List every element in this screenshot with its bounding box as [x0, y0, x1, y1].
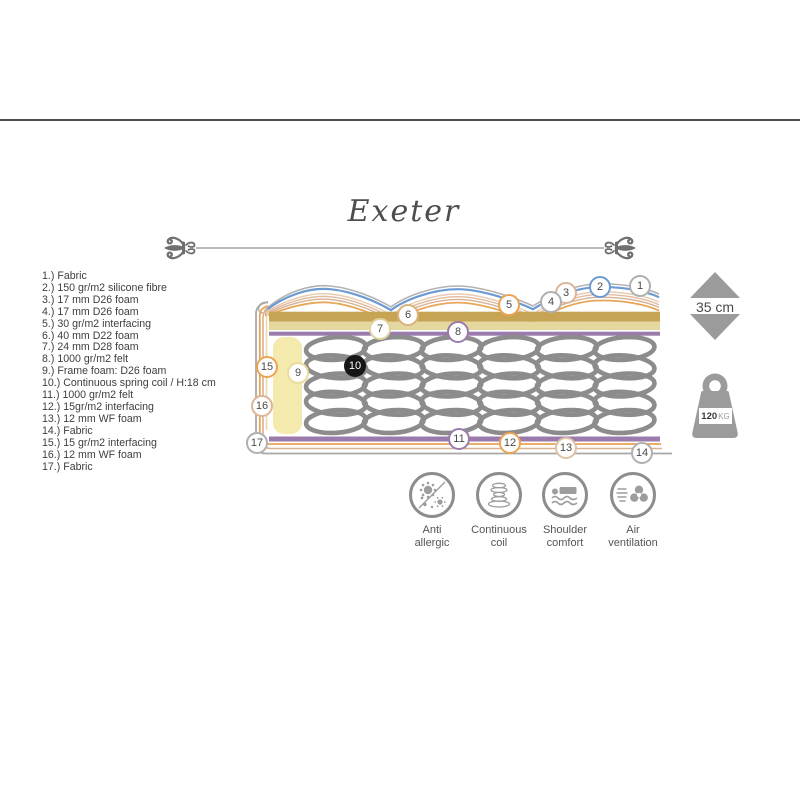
- item-number: 2.): [42, 282, 54, 294]
- layer-callout-5: 5: [498, 294, 520, 316]
- spec-list-item: 17.)Fabric: [42, 462, 216, 474]
- item-text: 12 mm WF foam: [63, 413, 141, 425]
- item-number: 1.): [42, 270, 54, 282]
- feature-label-line: ventilation: [588, 537, 678, 550]
- item-number: 3.): [42, 294, 54, 306]
- item-text: 1000 gr/m2 felt: [57, 353, 128, 365]
- item-number: 14.): [42, 425, 60, 437]
- anti-allergic-icon: [409, 472, 455, 518]
- layer-spec-list: 1.)Fabric 2.)150 gr/m2 silicone fibre 3.…: [42, 271, 216, 473]
- item-text: 150 gr/m2 silicone fibre: [57, 282, 167, 294]
- layer-callout-14: 14: [631, 442, 653, 464]
- spring-coils: [305, 335, 655, 435]
- arrow-up-icon: [690, 272, 740, 298]
- layer-callout-8: 8: [447, 321, 469, 343]
- item-number: 6.): [42, 330, 54, 342]
- item-number: 9.): [42, 365, 54, 377]
- layer-callout-15: 15: [256, 356, 278, 378]
- item-text: 12 mm WF foam: [63, 449, 141, 461]
- frame-foam: [273, 337, 302, 434]
- weight-label: 120 KG: [699, 408, 732, 424]
- mattress-spec-page: Exeter 1.)Fabric 2.)150 gr/m2 silicone f…: [0, 0, 800, 800]
- item-number: 16.): [42, 449, 60, 461]
- continuous-coil-icon: [476, 472, 522, 518]
- item-number: 7.): [42, 341, 54, 353]
- layer-callout-10: 10: [344, 355, 366, 377]
- layer-callout-13: 13: [555, 437, 577, 459]
- item-text: Fabric: [63, 461, 92, 473]
- item-number: 11.): [42, 389, 59, 401]
- layer-callout-11: 11: [448, 428, 470, 450]
- shoulder-comfort-icon: [542, 472, 588, 518]
- layer-callout-7: 7: [369, 318, 391, 340]
- weight-unit: KG: [718, 412, 730, 421]
- item-number: 12.): [42, 401, 60, 413]
- item-text: 15gr/m2 interfacing: [63, 401, 154, 413]
- arrow-down-icon: [690, 314, 740, 340]
- item-text: Frame foam: D26 foam: [57, 365, 166, 377]
- item-number: 10.): [42, 377, 60, 389]
- item-number: 5.): [42, 318, 54, 330]
- feature-label: Air ventilation: [588, 524, 678, 550]
- item-number: 13.): [42, 413, 60, 425]
- layer-callout-16: 16: [251, 395, 273, 417]
- item-text: Continuous spring coil / H:18 cm: [63, 377, 216, 389]
- feature-air-ventilation: Air ventilation: [588, 472, 678, 550]
- fleur-de-lis-left-icon: [164, 238, 195, 258]
- layer-callout-17: 17: [246, 432, 268, 454]
- item-text: 15 gr/m2 interfacing: [63, 437, 157, 449]
- layer-callout-2: 2: [589, 276, 611, 298]
- weight-icon: [681, 360, 749, 440]
- page-title: Exeter: [104, 194, 704, 229]
- layer-callout-12: 12: [499, 432, 521, 454]
- fleur-de-lis-right-icon: [605, 238, 636, 258]
- item-text: Fabric: [57, 270, 86, 282]
- item-text: 30 gr/m2 interfacing: [57, 318, 151, 330]
- item-number: 15.): [42, 437, 60, 449]
- item-text: 40 mm D22 foam: [57, 330, 138, 342]
- item-number: 8.): [42, 353, 54, 365]
- item-number: 4.): [42, 306, 54, 318]
- item-text: 17 mm D26 foam: [57, 294, 138, 306]
- item-text: 1000 gr/m2 felt: [62, 389, 133, 401]
- layer-callout-6: 6: [397, 304, 419, 326]
- air-ventilation-icon: [610, 472, 656, 518]
- item-text: 17 mm D26 foam: [57, 306, 138, 318]
- height-label: 35 cm: [681, 299, 749, 315]
- layer-callout-4: 4: [540, 291, 562, 313]
- layer-callout-9: 9: [287, 362, 309, 384]
- item-text: 24 mm D28 foam: [57, 341, 138, 353]
- item-number: 17.): [42, 461, 60, 473]
- page-top-divider: [0, 119, 800, 121]
- feature-label-line: Air: [588, 524, 678, 537]
- weight-value: 120: [701, 411, 717, 422]
- item-text: Fabric: [63, 425, 92, 437]
- layer-callout-1: 1: [629, 275, 651, 297]
